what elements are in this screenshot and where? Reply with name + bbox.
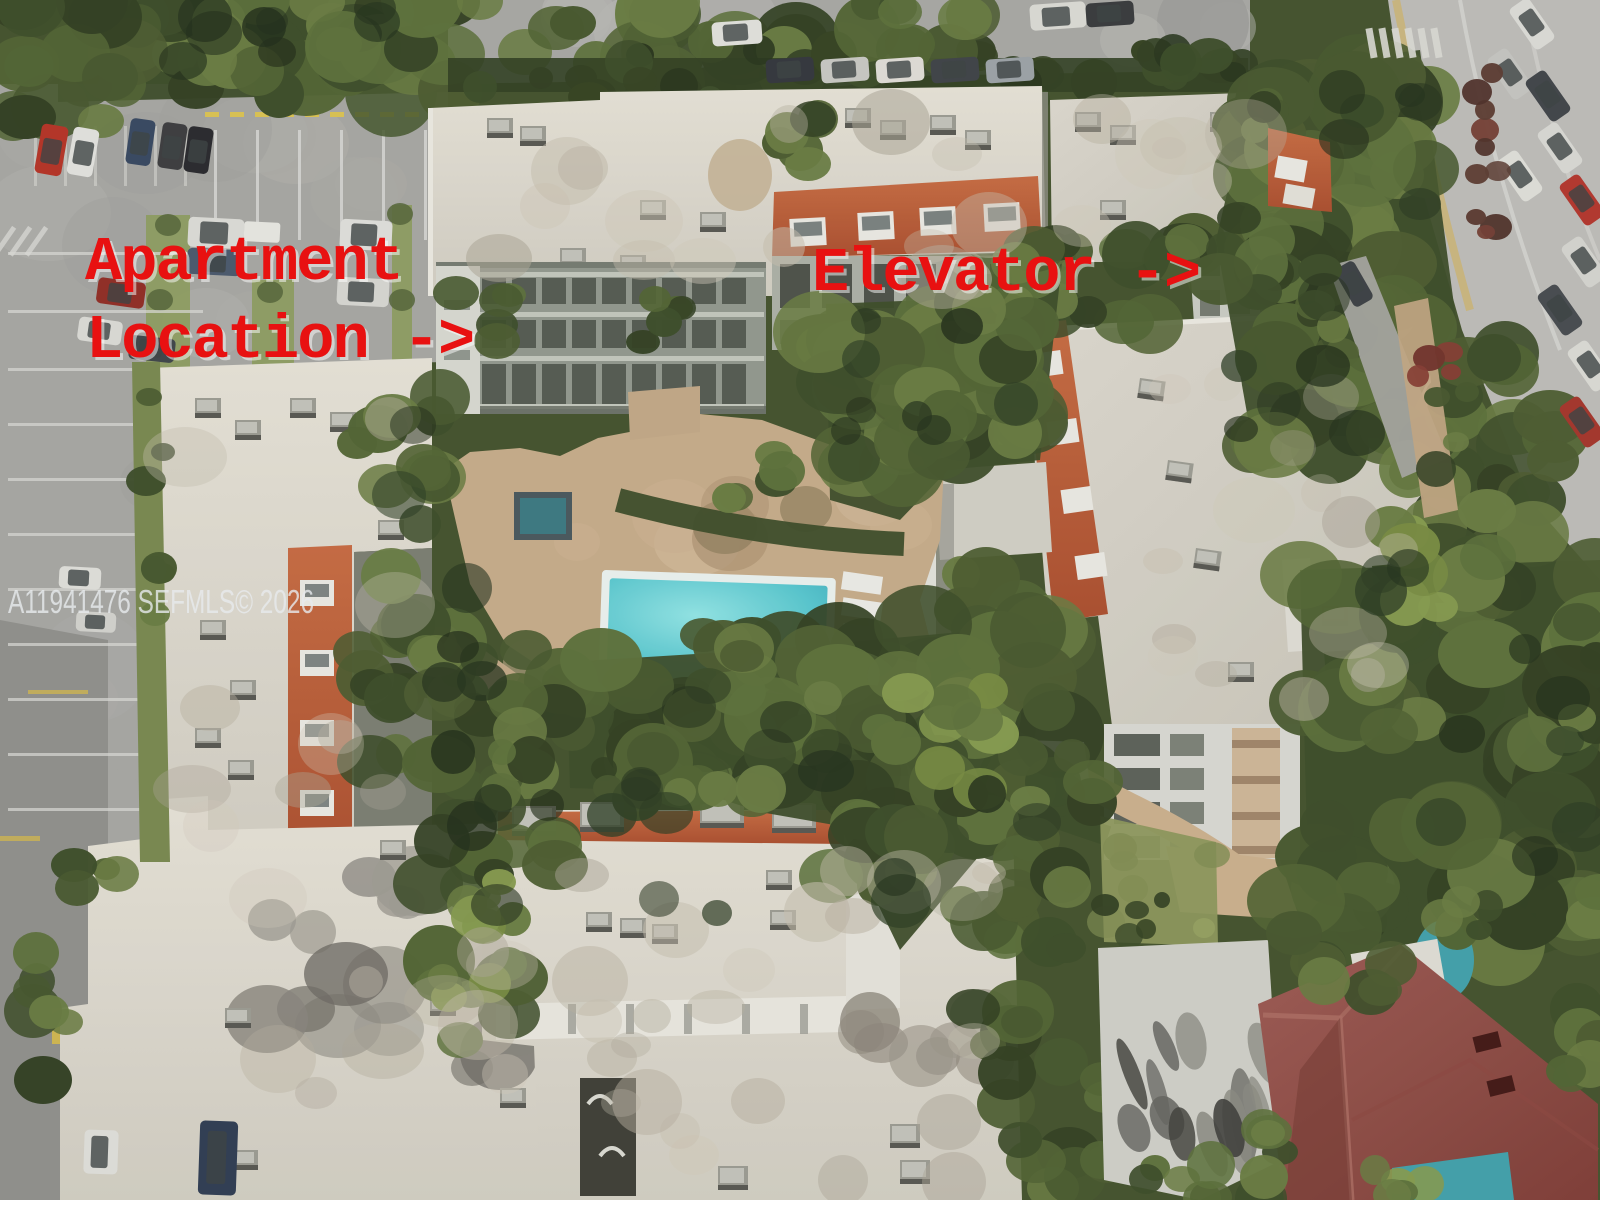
svg-text:Apartment: Apartment — [85, 227, 402, 298]
svg-text:Elevator ->: Elevator -> — [812, 238, 1199, 309]
svg-text:A11941476 SEFMLS© 2026: A11941476 SEFMLS© 2026 — [8, 583, 314, 620]
svg-text:Location ->: Location -> — [86, 305, 473, 376]
